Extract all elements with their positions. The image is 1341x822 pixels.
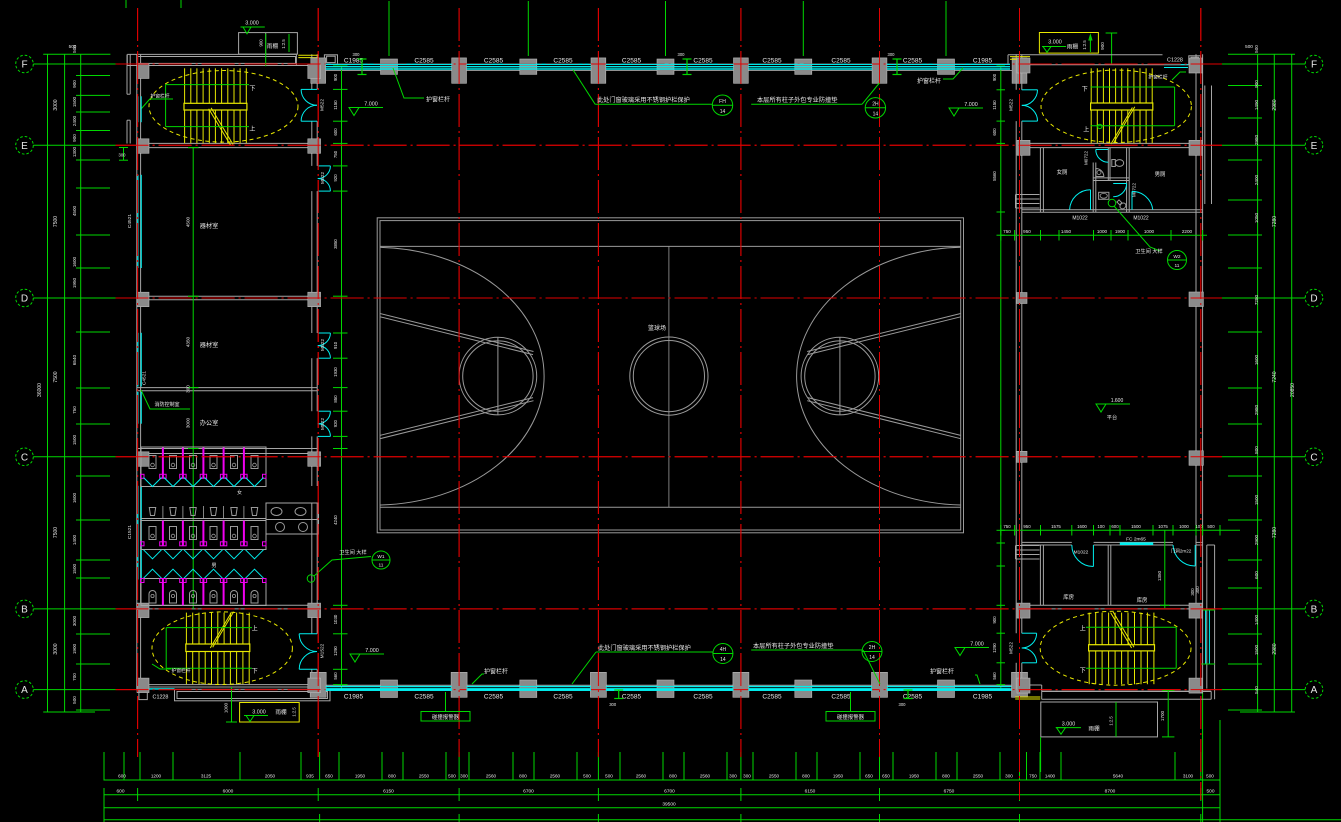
- svg-text:男厕: 男厕: [1155, 171, 1166, 178]
- svg-text:F: F: [1311, 60, 1317, 71]
- svg-text:3.000: 3.000: [245, 21, 259, 27]
- svg-text:门洞2m22: 门洞2m22: [1171, 548, 1192, 555]
- svg-text:护窗栏杆: 护窗栏杆: [917, 77, 941, 85]
- svg-text:3.000: 3.000: [1062, 721, 1076, 727]
- svg-text:6000: 6000: [223, 788, 234, 794]
- svg-text:2400: 2400: [72, 115, 77, 126]
- svg-text:300: 300: [743, 774, 751, 779]
- svg-text:1200: 1200: [151, 774, 162, 779]
- svg-text:D: D: [1310, 294, 1317, 305]
- svg-text:库房: 库房: [1063, 593, 1074, 601]
- svg-text:7280: 7280: [1254, 294, 1259, 305]
- svg-text:1000: 1000: [224, 702, 229, 713]
- svg-text:20850: 20850: [1290, 383, 1296, 397]
- svg-text:碰撞报警器: 碰撞报警器: [837, 713, 865, 721]
- svg-text:7500: 7500: [53, 216, 59, 227]
- svg-text:3.000: 3.000: [1048, 40, 1062, 46]
- svg-text:2560: 2560: [550, 774, 561, 779]
- svg-text:300: 300: [185, 385, 190, 393]
- svg-text:100: 100: [1097, 524, 1105, 529]
- svg-text:FH: FH: [719, 99, 726, 105]
- svg-text:7.000: 7.000: [970, 642, 984, 648]
- svg-text:4240: 4240: [333, 515, 338, 525]
- svg-text:800: 800: [519, 774, 527, 779]
- svg-text:1290: 1290: [333, 646, 338, 656]
- svg-text:600: 600: [116, 788, 124, 794]
- svg-text:935: 935: [306, 774, 314, 779]
- svg-text:上: 上: [252, 625, 258, 633]
- svg-text:2900: 2900: [1254, 534, 1259, 545]
- svg-text:14: 14: [720, 109, 726, 115]
- svg-text:雨棚: 雨棚: [275, 708, 287, 716]
- svg-text:W2: W2: [1173, 254, 1181, 260]
- svg-text:上: 上: [249, 125, 255, 133]
- svg-text:500: 500: [583, 774, 591, 779]
- svg-text:2200: 2200: [1182, 229, 1193, 234]
- svg-text:950: 950: [1023, 524, 1031, 529]
- svg-text:950: 950: [1023, 229, 1031, 234]
- svg-text:7500: 7500: [53, 527, 59, 538]
- svg-text:7.000: 7.000: [964, 102, 978, 108]
- svg-text:1400: 1400: [72, 534, 77, 545]
- svg-text:300: 300: [353, 52, 361, 57]
- svg-text:W1: W1: [377, 554, 385, 560]
- svg-text:600: 600: [333, 128, 338, 136]
- svg-text:1575: 1575: [1051, 524, 1061, 529]
- svg-text:2980: 2980: [1254, 404, 1259, 415]
- svg-text:2550: 2550: [419, 774, 430, 779]
- svg-text:护窗栏杆: 护窗栏杆: [930, 668, 954, 676]
- svg-text:900: 900: [1100, 42, 1105, 50]
- svg-text:300: 300: [609, 702, 617, 707]
- svg-text:2560: 2560: [700, 774, 711, 779]
- svg-text:C: C: [1310, 452, 1317, 463]
- svg-text:300: 300: [1005, 774, 1013, 779]
- svg-text:1030: 1030: [333, 614, 338, 624]
- svg-text:C: C: [21, 452, 28, 463]
- svg-text:1950: 1950: [909, 774, 920, 779]
- svg-text:1950: 1950: [72, 277, 77, 288]
- svg-text:900: 900: [333, 73, 338, 81]
- svg-text:4500: 4500: [185, 216, 190, 227]
- svg-text:M522: M522: [320, 339, 326, 351]
- svg-text:7240: 7240: [1272, 371, 1278, 382]
- svg-text:11: 11: [1175, 263, 1180, 269]
- svg-text:750: 750: [333, 150, 338, 158]
- svg-text:11: 11: [379, 563, 384, 569]
- svg-text:1600: 1600: [1254, 354, 1259, 365]
- svg-text:900: 900: [992, 73, 997, 81]
- svg-text:1000: 1000: [1179, 524, 1189, 529]
- svg-text:5560: 5560: [992, 171, 997, 181]
- svg-text:1350: 1350: [1157, 570, 1162, 581]
- svg-text:库房: 库房: [1137, 596, 1148, 604]
- svg-text:2560: 2560: [636, 774, 647, 779]
- svg-text:910: 910: [333, 341, 338, 349]
- svg-text:650: 650: [325, 774, 333, 779]
- svg-text:1500: 1500: [1131, 524, 1141, 529]
- svg-text:500: 500: [1206, 788, 1214, 794]
- svg-text:A: A: [1311, 685, 1318, 696]
- svg-text:2050: 2050: [265, 774, 276, 779]
- svg-text:1600: 1600: [72, 492, 77, 503]
- svg-text:650: 650: [882, 774, 890, 779]
- svg-text:560: 560: [333, 672, 338, 680]
- svg-text:300: 300: [1190, 588, 1195, 596]
- svg-text:4350: 4350: [185, 336, 190, 347]
- svg-text:1050: 1050: [1254, 212, 1259, 223]
- svg-text:1490: 1490: [1254, 99, 1259, 110]
- svg-text:1075: 1075: [1158, 524, 1168, 529]
- svg-text:下: 下: [1080, 668, 1086, 675]
- svg-text:1700: 1700: [1160, 710, 1165, 721]
- svg-text:1.600: 1.600: [1111, 398, 1124, 404]
- svg-text:300: 300: [888, 52, 896, 57]
- svg-text:540: 540: [1254, 686, 1259, 694]
- svg-text:3850: 3850: [333, 239, 338, 249]
- svg-text:500: 500: [72, 45, 77, 53]
- svg-text:1150: 1150: [333, 100, 338, 110]
- svg-text:300: 300: [119, 153, 127, 158]
- svg-text:卫生间 大样: 卫生间 大样: [339, 548, 366, 556]
- svg-text:4500: 4500: [72, 205, 77, 216]
- svg-text:M1022: M1022: [1072, 216, 1088, 222]
- svg-text:300: 300: [460, 774, 468, 779]
- svg-text:2980: 2980: [1254, 134, 1259, 145]
- svg-text:M1022: M1022: [1074, 550, 1089, 556]
- svg-text:1950: 1950: [833, 774, 844, 779]
- svg-text:14: 14: [869, 655, 875, 661]
- svg-text:下: 下: [252, 668, 258, 675]
- svg-text:900: 900: [992, 616, 997, 624]
- svg-text:6150: 6150: [805, 788, 816, 794]
- svg-text:D: D: [21, 294, 28, 305]
- svg-text:1300: 1300: [72, 146, 77, 157]
- svg-text:M1522: M1522: [320, 643, 326, 658]
- svg-text:M522: M522: [1009, 99, 1015, 111]
- svg-text:E: E: [21, 141, 28, 152]
- svg-text:7280: 7280: [1272, 216, 1278, 227]
- svg-text:900: 900: [72, 80, 77, 88]
- svg-text:800: 800: [802, 774, 810, 779]
- svg-text:碰撞报警器: 碰撞报警器: [432, 713, 460, 721]
- svg-text:上: 上: [1083, 126, 1089, 134]
- svg-text:7500: 7500: [53, 371, 59, 382]
- svg-text:M522: M522: [320, 99, 326, 111]
- svg-text:700: 700: [72, 673, 77, 681]
- svg-text:500: 500: [1207, 524, 1215, 529]
- svg-text:1500: 1500: [1254, 644, 1259, 655]
- svg-text:500: 500: [605, 774, 613, 779]
- svg-text:1000: 1000: [1144, 229, 1155, 234]
- svg-text:1600: 1600: [72, 256, 77, 267]
- svg-text:2550: 2550: [973, 774, 984, 779]
- svg-text:1500: 1500: [72, 434, 77, 445]
- svg-text:上: 上: [1080, 625, 1086, 633]
- svg-text:2400: 2400: [1254, 174, 1259, 185]
- svg-text:C1985: C1985: [973, 694, 993, 701]
- svg-text:920: 920: [333, 419, 338, 427]
- svg-text:1450: 1450: [1061, 229, 1072, 234]
- svg-text:500: 500: [72, 696, 77, 704]
- svg-text:C2585: C2585: [484, 694, 504, 701]
- svg-text:C2585: C2585: [903, 694, 923, 701]
- svg-text:300: 300: [729, 774, 737, 779]
- svg-text:800: 800: [1254, 446, 1259, 454]
- svg-text:器材室: 器材室: [200, 341, 219, 349]
- svg-text:器材室: 器材室: [200, 222, 219, 230]
- svg-text:1:2.5: 1:2.5: [281, 39, 286, 49]
- svg-text:下: 下: [249, 85, 255, 92]
- svg-text:B: B: [1311, 605, 1318, 616]
- svg-text:750: 750: [1029, 774, 1037, 779]
- svg-text:750: 750: [1003, 229, 1011, 234]
- svg-text:1600: 1600: [1077, 524, 1087, 529]
- svg-text:男: 男: [211, 563, 216, 569]
- svg-text:本层所有柱子外包专业防撞垫: 本层所有柱子外包专业防撞垫: [753, 642, 834, 650]
- svg-text:C2585: C2585: [553, 694, 573, 701]
- svg-text:6540: 6540: [72, 354, 77, 365]
- svg-text:M522: M522: [320, 172, 326, 184]
- svg-text:E: E: [1311, 141, 1318, 152]
- svg-text:雨棚: 雨棚: [1088, 725, 1100, 733]
- svg-text:6700: 6700: [523, 788, 534, 794]
- svg-text:护窗栏杆: 护窗栏杆: [1148, 74, 1167, 81]
- svg-text:7280: 7280: [1272, 527, 1278, 538]
- svg-text:2980: 2980: [1272, 643, 1278, 654]
- svg-text:1290: 1290: [992, 643, 997, 653]
- svg-text:1500: 1500: [72, 96, 77, 107]
- svg-text:100: 100: [1195, 524, 1203, 529]
- svg-text:C2585: C2585: [762, 694, 782, 701]
- svg-text:C2585: C2585: [693, 694, 713, 701]
- svg-text:1930: 1930: [333, 367, 338, 377]
- svg-text:篮球场: 篮球场: [648, 324, 666, 332]
- svg-text:C4521: C4521: [142, 371, 148, 385]
- svg-text:2550: 2550: [769, 774, 780, 779]
- svg-text:7.000: 7.000: [365, 648, 379, 654]
- svg-text:3100: 3100: [1183, 774, 1194, 779]
- svg-text:3125: 3125: [201, 774, 212, 779]
- svg-text:此处门窗玻璃采用不锈钢护栏保护: 此处门窗玻璃采用不锈钢护栏保护: [598, 644, 691, 652]
- svg-text:900: 900: [72, 134, 77, 142]
- svg-text:B: B: [21, 605, 28, 616]
- svg-text:1900: 1900: [72, 643, 77, 654]
- svg-text:8700: 8700: [1105, 788, 1116, 794]
- svg-text:护窗栏杆: 护窗栏杆: [150, 92, 169, 99]
- svg-text:平台: 平台: [1107, 413, 1117, 421]
- svg-text:600: 600: [1254, 571, 1259, 579]
- svg-text:3000: 3000: [53, 643, 59, 654]
- svg-text:M0722: M0722: [1084, 151, 1089, 165]
- svg-text:6150: 6150: [383, 788, 394, 794]
- svg-text:750: 750: [72, 406, 77, 414]
- svg-text:M1022: M1022: [1133, 216, 1149, 222]
- svg-text:3000: 3000: [185, 417, 190, 428]
- svg-text:850: 850: [333, 395, 338, 403]
- svg-text:750: 750: [1003, 524, 1011, 529]
- svg-text:600: 600: [118, 774, 126, 779]
- svg-text:920: 920: [333, 174, 338, 182]
- svg-text:护窗栏杆: 护窗栏杆: [171, 667, 190, 674]
- svg-text:3000: 3000: [53, 99, 59, 110]
- svg-text:C4521: C4521: [127, 214, 133, 228]
- svg-text:300: 300: [1195, 586, 1200, 594]
- svg-text:1900: 1900: [1115, 229, 1126, 234]
- svg-text:600: 600: [1111, 524, 1119, 529]
- svg-text:14: 14: [873, 111, 879, 117]
- svg-text:C1228: C1228: [153, 695, 169, 701]
- svg-text:39500: 39500: [662, 802, 676, 808]
- svg-text:5640: 5640: [1113, 774, 1124, 779]
- svg-text:FC 2m65: FC 2m65: [1126, 537, 1146, 543]
- svg-text:1150: 1150: [992, 100, 997, 110]
- svg-text:F: F: [21, 60, 27, 71]
- svg-text:雨棚: 雨棚: [1067, 43, 1079, 51]
- svg-text:6750: 6750: [944, 788, 955, 794]
- svg-text:1:2.5: 1:2.5: [1082, 40, 1087, 50]
- svg-text:卫生间 大样: 卫生间 大样: [1135, 247, 1162, 255]
- svg-text:800: 800: [669, 774, 677, 779]
- svg-text:500: 500: [1206, 774, 1214, 779]
- svg-text:6700: 6700: [664, 788, 675, 794]
- svg-text:雨棚: 雨棚: [267, 42, 279, 50]
- svg-text:M522: M522: [1009, 642, 1015, 654]
- svg-text:C1985: C1985: [344, 694, 364, 701]
- svg-text:300: 300: [678, 52, 686, 57]
- svg-text:护窗栏杆: 护窗栏杆: [484, 668, 508, 676]
- svg-text:C2585: C2585: [414, 694, 434, 701]
- svg-text:女厕: 女厕: [1057, 168, 1068, 176]
- svg-text:下: 下: [1082, 86, 1088, 93]
- svg-text:7.000: 7.000: [364, 102, 378, 108]
- svg-text:2980: 2980: [1272, 99, 1278, 110]
- svg-text:此处门窗玻璃采用不锈钢护栏保护: 此处门窗玻璃采用不锈钢护栏保护: [597, 96, 690, 104]
- svg-text:消防控制室: 消防控制室: [154, 401, 179, 408]
- svg-text:2560: 2560: [486, 774, 497, 779]
- svg-text:1400: 1400: [1045, 774, 1056, 779]
- svg-text:本层所有柱子外包专业防撞垫: 本层所有柱子外包专业防撞垫: [757, 96, 838, 104]
- svg-text:800: 800: [942, 774, 950, 779]
- svg-text:500: 500: [1254, 45, 1259, 53]
- svg-text:14: 14: [720, 657, 726, 663]
- svg-text:900: 900: [1254, 80, 1259, 88]
- svg-text:300: 300: [899, 702, 907, 707]
- svg-text:1400: 1400: [1254, 614, 1259, 625]
- svg-text:1500: 1500: [1254, 494, 1259, 505]
- svg-text:护窗栏杆: 护窗栏杆: [426, 96, 450, 104]
- svg-text:600: 600: [992, 128, 997, 136]
- svg-text:C2585: C2585: [831, 694, 851, 701]
- svg-text:3000: 3000: [72, 615, 77, 626]
- svg-text:1950: 1950: [355, 774, 366, 779]
- svg-text:办公室: 办公室: [200, 419, 219, 427]
- svg-text:3.000: 3.000: [252, 710, 266, 716]
- svg-text:500: 500: [448, 774, 456, 779]
- svg-text:650: 650: [865, 774, 873, 779]
- svg-text:A: A: [21, 685, 28, 696]
- svg-text:1:2.5: 1:2.5: [1109, 716, 1114, 726]
- svg-text:500: 500: [1245, 44, 1253, 49]
- svg-text:C1521: C1521: [127, 525, 133, 539]
- svg-text:800: 800: [388, 774, 396, 779]
- svg-text:1500: 1500: [72, 563, 77, 574]
- svg-text:1:2.5: 1:2.5: [292, 707, 297, 717]
- svg-text:4H: 4H: [720, 647, 727, 653]
- svg-text:560: 560: [992, 672, 997, 680]
- svg-text:女: 女: [237, 489, 242, 496]
- svg-text:36000: 36000: [37, 383, 43, 397]
- svg-text:C2585: C2585: [622, 694, 642, 701]
- svg-text:M522: M522: [320, 418, 326, 430]
- svg-text:900: 900: [258, 39, 263, 47]
- svg-text:1000: 1000: [1097, 229, 1108, 234]
- svg-text:C1228: C1228: [1167, 58, 1183, 64]
- svg-text:2H: 2H: [872, 101, 879, 107]
- svg-text:2H: 2H: [869, 645, 876, 651]
